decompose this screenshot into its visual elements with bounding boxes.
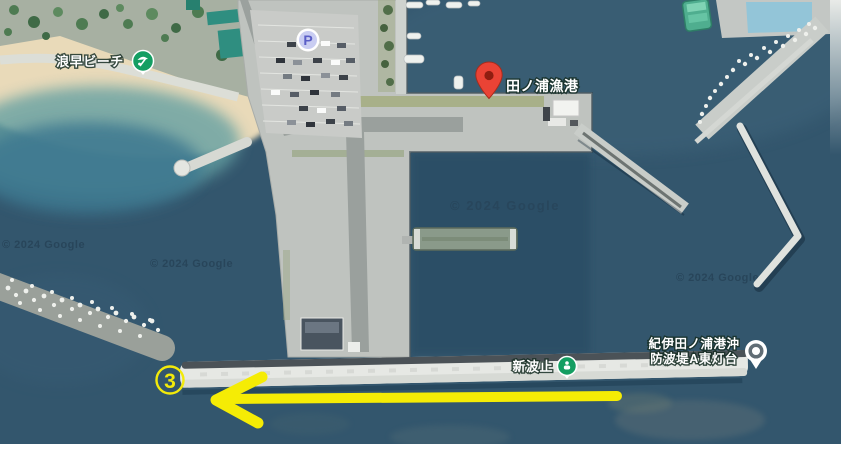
google-watermark: © 2024 Google (150, 258, 233, 270)
step-number: 3 (164, 370, 176, 393)
north-pier-strip (396, 0, 407, 94)
grass-strip (283, 250, 290, 320)
shed (348, 342, 360, 352)
google-watermark: © 2024 Google (450, 198, 560, 213)
parking-poi[interactable]: P (297, 29, 320, 52)
lighthouse-label-line2[interactable]: 防波堤A東灯台 (650, 351, 738, 366)
port-label[interactable]: 田ノ浦漁港 (506, 78, 579, 94)
grass-strip (348, 96, 544, 107)
blue-tarp-area (746, 2, 812, 33)
parking-icon-letter: P (303, 32, 312, 48)
annotated-map-screenshot: © 2024 Google © 2024 Google © 2024 Googl… (0, 0, 841, 451)
google-watermark: © 2024 Google (2, 239, 85, 251)
breakwater-label[interactable]: 新波止 (512, 359, 553, 374)
beach-label[interactable]: 浪早ビーチ (56, 54, 124, 69)
right-edge-seawall (830, 0, 841, 155)
floating-dock (402, 228, 517, 250)
lighthouse-label-line1[interactable]: 紀伊田ノ浦港沖 (648, 336, 739, 351)
satellite-map[interactable]: © 2024 Google © 2024 Google © 2024 Googl… (0, 0, 841, 444)
page-margin-strip (0, 444, 841, 451)
google-watermark: © 2024 Google (676, 272, 759, 284)
